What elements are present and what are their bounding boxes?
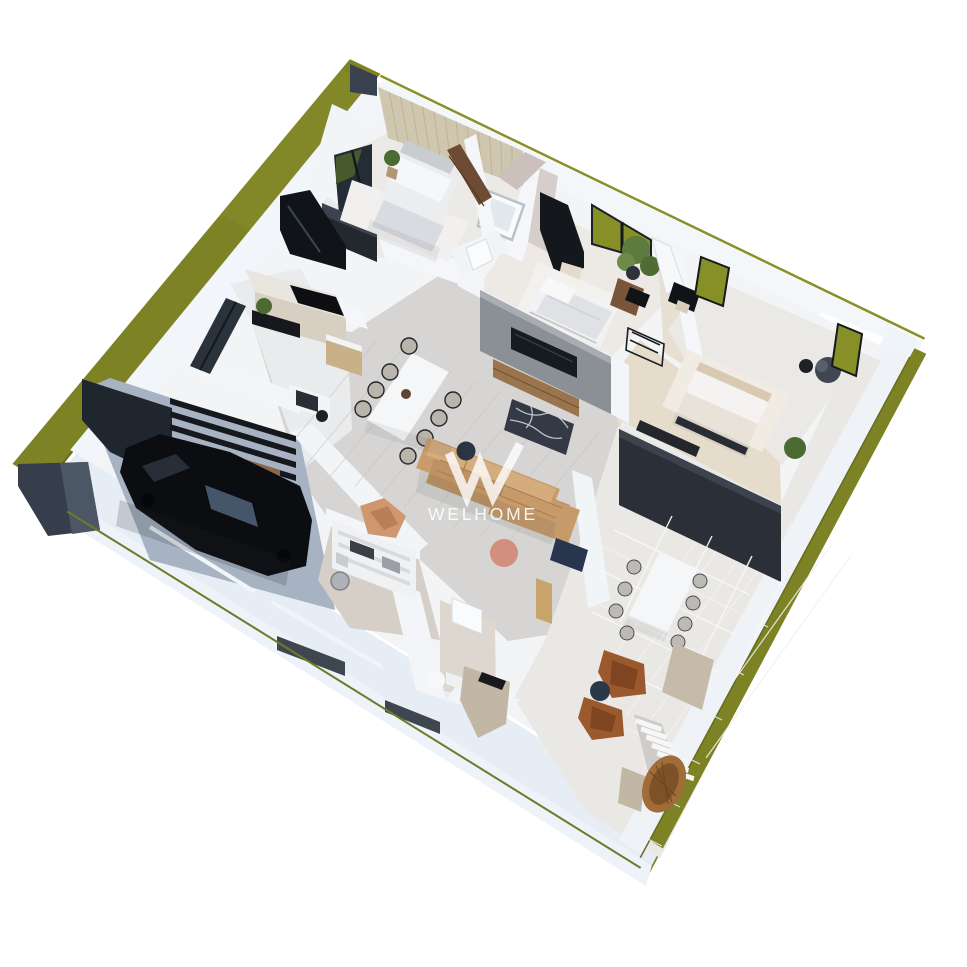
svg-text:WELHOME: WELHOME <box>428 504 538 524</box>
